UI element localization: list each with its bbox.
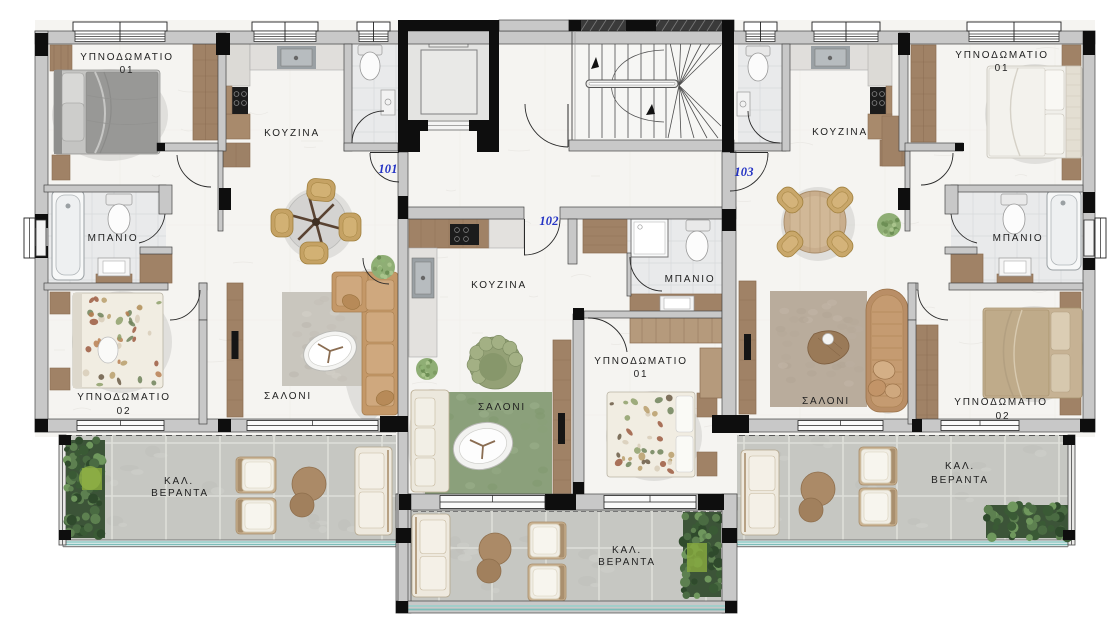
svg-text:ΒΕΡΑΝΤΑ: ΒΕΡΑΝΤΑ: [151, 488, 209, 499]
svg-text:ΣΑΛΟΝΙ: ΣΑΛΟΝΙ: [264, 391, 312, 402]
svg-text:ΒΕΡΑΝΤΑ: ΒΕΡΑΝΤΑ: [598, 557, 656, 568]
svg-text:102: 102: [539, 214, 558, 228]
svg-text:ΥΠΝΟΔΩΜΑΤΙΟ: ΥΠΝΟΔΩΜΑΤΙΟ: [954, 397, 1048, 408]
svg-text:ΚΟΥΖΙΝΑ: ΚΟΥΖΙΝΑ: [264, 128, 320, 139]
svg-text:ΜΠΑΝΙΟ: ΜΠΑΝΙΟ: [88, 233, 139, 244]
svg-text:ΥΠΝΟΔΩΜΑΤΙΟ: ΥΠΝΟΔΩΜΑΤΙΟ: [955, 50, 1049, 61]
svg-text:ΥΠΝΟΔΩΜΑΤΙΟ: ΥΠΝΟΔΩΜΑΤΙΟ: [77, 392, 171, 403]
svg-text:ΚΟΥΖΙΝΑ: ΚΟΥΖΙΝΑ: [812, 127, 868, 138]
svg-text:ΥΠΝΟΔΩΜΑΤΙΟ: ΥΠΝΟΔΩΜΑΤΙΟ: [594, 356, 688, 367]
svg-text:ΒΕΡΑΝΤΑ: ΒΕΡΑΝΤΑ: [931, 475, 989, 486]
svg-text:ΚΑΛ.: ΚΑΛ.: [164, 476, 194, 487]
svg-text:101: 101: [378, 162, 397, 176]
svg-text:ΣΑΛΟΝΙ: ΣΑΛΟΝΙ: [802, 396, 850, 407]
svg-text:ΜΠΑΝΙΟ: ΜΠΑΝΙΟ: [993, 233, 1044, 244]
svg-text:01: 01: [995, 63, 1010, 74]
svg-text:ΥΠΝΟΔΩΜΑΤΙΟ: ΥΠΝΟΔΩΜΑΤΙΟ: [80, 52, 174, 63]
svg-text:01: 01: [634, 369, 649, 380]
svg-text:01: 01: [120, 65, 135, 76]
svg-text:ΚΟΥΖΙΝΑ: ΚΟΥΖΙΝΑ: [471, 280, 527, 291]
svg-text:ΚΑΛ.: ΚΑΛ.: [945, 461, 975, 472]
svg-text:02: 02: [996, 411, 1011, 422]
svg-text:ΣΑΛΟΝΙ: ΣΑΛΟΝΙ: [478, 402, 526, 413]
svg-text:103: 103: [734, 165, 753, 179]
svg-text:02: 02: [117, 406, 132, 417]
svg-text:ΚΑΛ.: ΚΑΛ.: [612, 545, 642, 556]
svg-text:ΜΠΑΝΙΟ: ΜΠΑΝΙΟ: [665, 274, 716, 285]
